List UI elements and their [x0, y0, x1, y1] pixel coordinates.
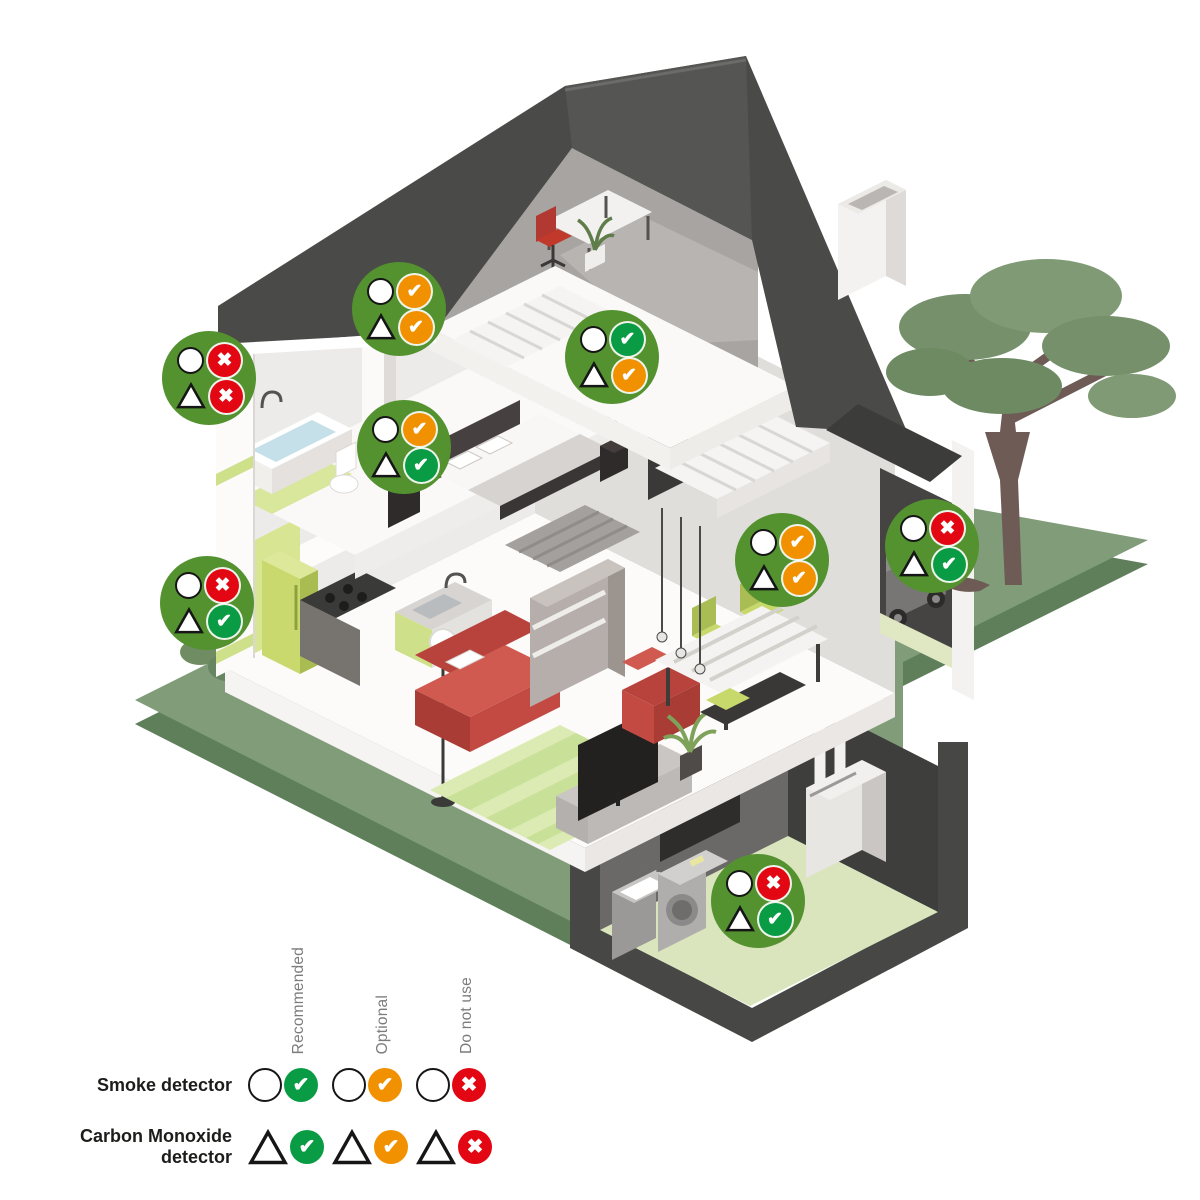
detector-placement-infographic: ✔✔✖✖✔✔✔✔✖✔✔✔✖✔✖✔ Recommended Optional Do… — [0, 0, 1200, 1200]
co-detector-symbol-triangle — [248, 1129, 288, 1166]
legend-row-smoke-detector: Smoke detector ✔✔✖ — [50, 1054, 520, 1116]
smoke-detector-symbol-circle — [332, 1068, 366, 1102]
smoke-detector-symbol-circle — [248, 1068, 282, 1102]
legend-row-carbon-monoxide-detector: Carbon Monoxide detector ✔✔✖ — [50, 1116, 520, 1178]
legend-column-do-not-use: Do not use — [458, 977, 476, 1054]
status-recommended-icon: ✔ — [290, 1130, 324, 1164]
legend-group-smoke-recommended: ✔ — [248, 1068, 332, 1102]
cut-wall-left — [216, 313, 254, 677]
co-detector-symbol-triangle — [416, 1129, 456, 1166]
legend-column-recommended: Recommended — [290, 947, 308, 1054]
status-do-not-use-icon: ✖ — [452, 1068, 486, 1102]
legend-column-optional: Optional — [374, 995, 392, 1054]
status-recommended-icon: ✔ — [284, 1068, 318, 1102]
legend-group-smoke-optional: ✔ — [332, 1068, 416, 1102]
legend-label-carbon-monoxide-detector: Carbon Monoxide detector — [50, 1126, 248, 1168]
legend-label-smoke-detector: Smoke detector — [50, 1075, 248, 1096]
legend-group-smoke-do-not-use: ✖ — [416, 1068, 500, 1102]
legend-headers: Recommended Optional Do not use — [50, 946, 520, 1054]
status-optional-icon: ✔ — [374, 1130, 408, 1164]
smoke-detector-symbol-circle — [416, 1068, 450, 1102]
legend-group-co-recommended: ✔ — [248, 1129, 332, 1166]
legend: Recommended Optional Do not use Smoke de… — [50, 946, 520, 1178]
chimney — [838, 180, 906, 300]
status-do-not-use-icon: ✖ — [458, 1130, 492, 1164]
co-detector-symbol-triangle — [332, 1129, 372, 1166]
legend-group-co-optional: ✔ — [332, 1129, 416, 1166]
status-optional-icon: ✔ — [368, 1068, 402, 1102]
legend-group-co-do-not-use: ✖ — [416, 1129, 500, 1166]
